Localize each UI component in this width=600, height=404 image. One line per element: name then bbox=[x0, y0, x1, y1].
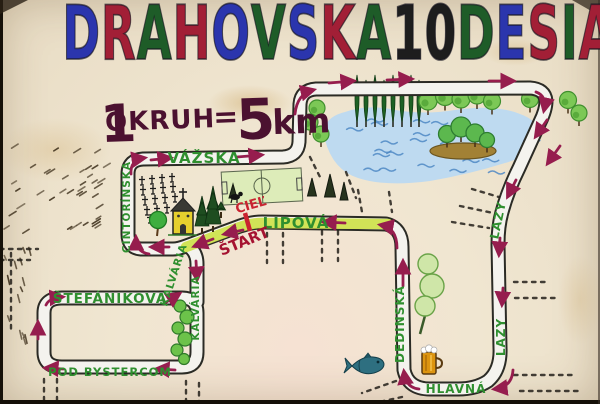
title-letter: E bbox=[496, 0, 527, 72]
bush-detail bbox=[573, 112, 579, 118]
church-icon bbox=[168, 188, 197, 235]
title-letter: D bbox=[62, 0, 100, 72]
street-label-lipova: LIPOVÁ bbox=[263, 213, 330, 232]
title-letter: D bbox=[457, 0, 495, 72]
dark-tree bbox=[340, 182, 348, 200]
pale-tree bbox=[418, 254, 438, 274]
race-poster: VÁŽSKA CINTORÍNSKA LIPOVÁ ŠTEFÁNIKOVA PO… bbox=[0, 0, 600, 404]
street-label-vazska: VÁŽSKA bbox=[167, 148, 240, 167]
pale-tree bbox=[415, 296, 435, 316]
dedinska-trees bbox=[415, 254, 444, 334]
hatch-mark bbox=[17, 204, 25, 209]
cross-icon bbox=[139, 176, 145, 185]
bush-detail bbox=[524, 98, 531, 105]
round-tree-icon bbox=[150, 212, 167, 237]
poster-title: DRAHOVSKÁ10DESIATKA bbox=[0, 0, 600, 51]
title-letter: R bbox=[101, 0, 136, 72]
cross-icon bbox=[144, 206, 150, 215]
cross-icon bbox=[169, 173, 175, 182]
pale-tree bbox=[420, 274, 444, 298]
dark-tree bbox=[325, 174, 336, 197]
lap-label: OKRUH bbox=[105, 104, 216, 138]
hatch-mark bbox=[37, 191, 43, 195]
title-letter: I bbox=[561, 0, 578, 72]
shore-bush bbox=[571, 105, 587, 121]
wave-squiggle bbox=[488, 171, 504, 174]
bush-detail bbox=[454, 97, 461, 104]
cross-icon bbox=[140, 186, 146, 195]
hatch-mark bbox=[4, 226, 9, 229]
title-letter: S bbox=[527, 0, 560, 72]
hatch-mark bbox=[15, 261, 17, 268]
beer-mug-icon bbox=[421, 345, 442, 374]
hatch-mark bbox=[12, 181, 17, 184]
cross-icon bbox=[162, 194, 168, 203]
race-title: DRAHOVSKÁ10DESIATKA bbox=[62, 0, 600, 72]
street-label-lazy-lower: LAZY bbox=[494, 318, 508, 356]
cross-icon bbox=[172, 193, 178, 202]
hatch-mark bbox=[23, 278, 25, 286]
cross-icon bbox=[150, 185, 156, 194]
hatch-mark bbox=[98, 179, 105, 183]
title-letter: H bbox=[173, 0, 211, 72]
title-letter: K bbox=[320, 0, 355, 72]
hatch-mark bbox=[80, 182, 85, 185]
hatch-mark bbox=[20, 287, 22, 291]
hatch-mark bbox=[9, 211, 16, 215]
title-letter: A bbox=[137, 0, 172, 72]
hatch-mark bbox=[20, 330, 22, 339]
hatch-mark bbox=[8, 276, 10, 285]
street-label-hlavna: HLAVNÁ bbox=[426, 381, 487, 396]
title-letter: A bbox=[579, 0, 600, 72]
bush-detail bbox=[486, 100, 493, 107]
title-letter: S bbox=[287, 0, 320, 72]
street-label-pod-bystercom: POD BYSTERCOM bbox=[48, 365, 172, 379]
cross-icon bbox=[142, 196, 148, 205]
hatch-mark bbox=[67, 190, 73, 194]
hatch-mark bbox=[22, 333, 24, 337]
hatch-mark bbox=[23, 248, 25, 253]
cross-icon bbox=[170, 183, 176, 192]
title-letter: O bbox=[211, 0, 250, 72]
hatch-mark bbox=[23, 229, 29, 233]
distance-value: 5 bbox=[235, 87, 276, 153]
street-label-cintorinska: CINTORÍNSKA bbox=[120, 161, 133, 253]
fish-icon bbox=[344, 353, 384, 374]
island-tree bbox=[480, 133, 495, 148]
cross-icon bbox=[164, 204, 170, 213]
hatch-mark bbox=[60, 189, 66, 193]
bush-detail bbox=[421, 99, 428, 106]
distance-unit: km bbox=[272, 101, 331, 143]
cross-icon bbox=[159, 174, 165, 183]
hatch-mark bbox=[92, 180, 97, 183]
cross-icon bbox=[160, 184, 166, 193]
hatch-mark bbox=[83, 222, 87, 225]
street-label-stefanikova: ŠTEFÁNIKOVA bbox=[53, 289, 168, 307]
dark-tree bbox=[308, 178, 317, 196]
street-label-dedinska: DEDINSKÁ bbox=[392, 285, 407, 363]
street-label-kalvaria-2: KALVÁRIA bbox=[189, 275, 202, 340]
title-letter: 0 bbox=[425, 0, 457, 72]
cross-icon bbox=[152, 195, 158, 204]
hatch-mark bbox=[95, 184, 102, 189]
title-letter: Á bbox=[356, 0, 391, 72]
hatch-mark bbox=[8, 316, 10, 321]
roadside-bush bbox=[179, 354, 190, 365]
hatch-mark bbox=[50, 197, 55, 200]
hatch-mark bbox=[93, 194, 98, 197]
hatch-mark bbox=[78, 187, 85, 191]
hatch-mark bbox=[104, 163, 111, 167]
pine-tree bbox=[205, 186, 221, 224]
title-letter: 1 bbox=[392, 0, 424, 72]
hatch-mark bbox=[4, 256, 6, 260]
hatch-mark bbox=[96, 204, 103, 208]
cross-icon bbox=[149, 175, 155, 184]
bush-detail bbox=[562, 99, 569, 106]
shore-bush bbox=[560, 92, 577, 109]
hatch-mark bbox=[16, 189, 20, 192]
hatch-mark bbox=[77, 223, 81, 226]
hatch-mark bbox=[18, 295, 20, 303]
title-letter: V bbox=[251, 0, 286, 72]
